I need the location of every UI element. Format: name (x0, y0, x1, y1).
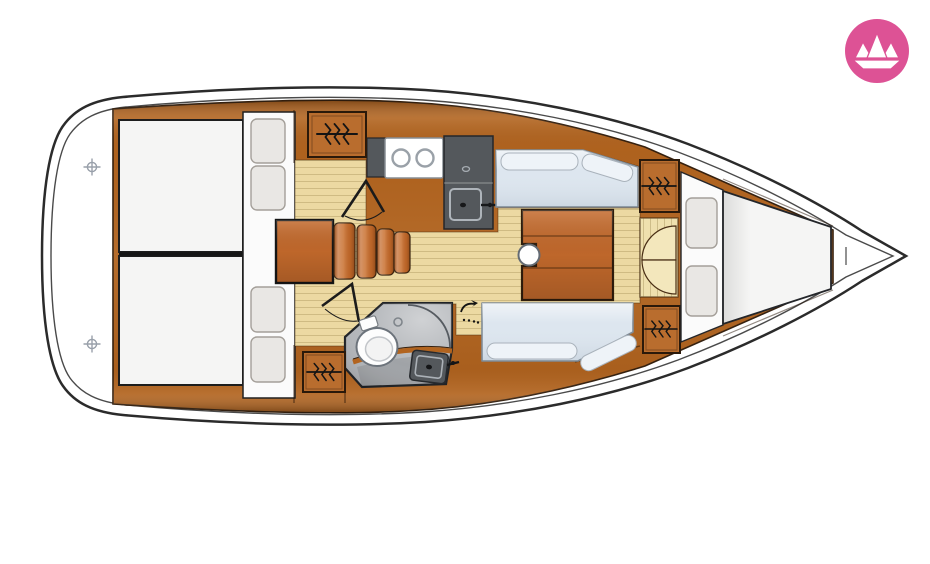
step-tread (377, 229, 394, 275)
step-tread (394, 232, 410, 273)
mast-post-icon (519, 245, 540, 266)
pillow (251, 166, 285, 210)
aft-cabin-top-berth (119, 120, 243, 252)
companionway-steps (276, 220, 410, 283)
hanging-locker (303, 352, 345, 392)
head-faucet-knob (451, 361, 455, 365)
head-sink (409, 350, 448, 384)
step-tread (334, 223, 355, 279)
step-tread (357, 225, 376, 278)
pillow (251, 287, 285, 332)
hanging-locker (643, 306, 680, 353)
yacht-floorplan-page (0, 0, 930, 564)
hanging-locker (308, 112, 366, 157)
pillow (251, 119, 285, 163)
galley-counter-left (367, 138, 385, 177)
hanging-locker (640, 160, 679, 212)
faucet-knob (488, 203, 492, 207)
yacht-floorplan-svg (0, 0, 930, 564)
aft-cabins (119, 112, 296, 398)
brand-logo (845, 19, 909, 83)
pillow (251, 337, 285, 382)
sink-drain (460, 203, 466, 208)
aft-cabin-bottom-berth (119, 256, 243, 385)
pillow (686, 266, 717, 316)
bow-doorway (640, 218, 678, 297)
step-landing-shade (276, 220, 333, 283)
burner (393, 150, 410, 167)
settee-back-cushion (501, 153, 578, 170)
pillow (686, 198, 717, 248)
settee-back-cushion (487, 343, 577, 359)
burner (417, 150, 434, 167)
